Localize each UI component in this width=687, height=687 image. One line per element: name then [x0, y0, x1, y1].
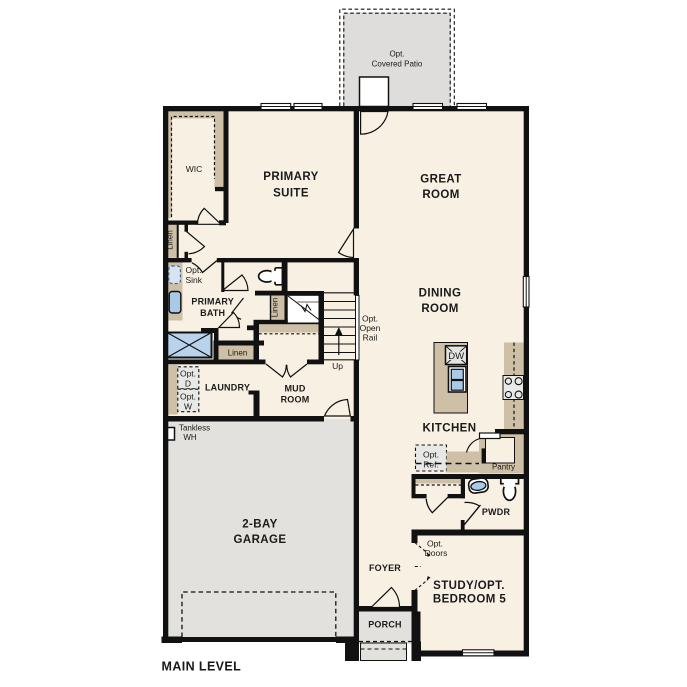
svg-text:Opt.: Opt.	[186, 265, 202, 275]
svg-text:Opt.: Opt.	[180, 369, 196, 379]
svg-text:W: W	[184, 402, 192, 412]
svg-text:ROOM: ROOM	[422, 189, 459, 201]
svg-text:WIC: WIC	[186, 164, 203, 174]
svg-text:Linen: Linen	[166, 230, 175, 250]
svg-text:ROOM: ROOM	[281, 395, 310, 405]
svg-text:PORCH: PORCH	[368, 620, 402, 630]
svg-text:Opt.: Opt.	[427, 538, 443, 548]
svg-text:SUITE: SUITE	[273, 188, 309, 200]
svg-text:KITCHEN: KITCHEN	[423, 423, 477, 435]
svg-text:Opt.: Opt.	[362, 314, 378, 324]
svg-text:DW: DW	[448, 351, 464, 362]
svg-text:FOYER: FOYER	[369, 563, 401, 573]
svg-text:PRIMARY: PRIMARY	[263, 171, 318, 183]
svg-text:WH: WH	[183, 433, 197, 442]
svg-text:PWDR: PWDR	[482, 507, 511, 517]
svg-text:Opt.: Opt.	[180, 392, 196, 402]
svg-text:Opt.: Opt.	[389, 50, 404, 59]
svg-text:Sink: Sink	[186, 275, 203, 285]
svg-text:GREAT: GREAT	[420, 174, 461, 186]
svg-text:2-BAY: 2-BAY	[242, 518, 277, 530]
svg-text:Covered Patio: Covered Patio	[372, 60, 423, 69]
svg-text:Pantry: Pantry	[492, 463, 515, 472]
svg-text:DINING: DINING	[419, 287, 462, 299]
svg-text:ROOM: ROOM	[421, 303, 458, 315]
svg-text:D: D	[185, 379, 191, 389]
svg-text:LAUNDRY: LAUNDRY	[205, 383, 250, 393]
svg-text:Linen: Linen	[228, 349, 248, 358]
svg-text:Opt.: Opt.	[423, 450, 439, 460]
svg-text:PRIMARY: PRIMARY	[191, 297, 234, 307]
svg-text:Tankless: Tankless	[179, 424, 210, 433]
svg-text:Ref.: Ref.	[423, 460, 439, 470]
svg-text:STUDY/OPT.: STUDY/OPT.	[433, 580, 505, 592]
svg-text:BATH: BATH	[200, 308, 225, 318]
svg-text:Up: Up	[332, 361, 343, 371]
svg-text:Open: Open	[360, 323, 381, 333]
svg-text:MAIN LEVEL: MAIN LEVEL	[162, 660, 242, 674]
svg-text:Doors: Doors	[425, 548, 448, 558]
svg-text:MUD: MUD	[284, 384, 305, 394]
svg-text:BEDROOM 5: BEDROOM 5	[433, 594, 506, 606]
svg-text:GARAGE: GARAGE	[234, 534, 287, 546]
svg-text:Rail: Rail	[363, 333, 378, 343]
svg-text:Linen: Linen	[271, 298, 280, 318]
